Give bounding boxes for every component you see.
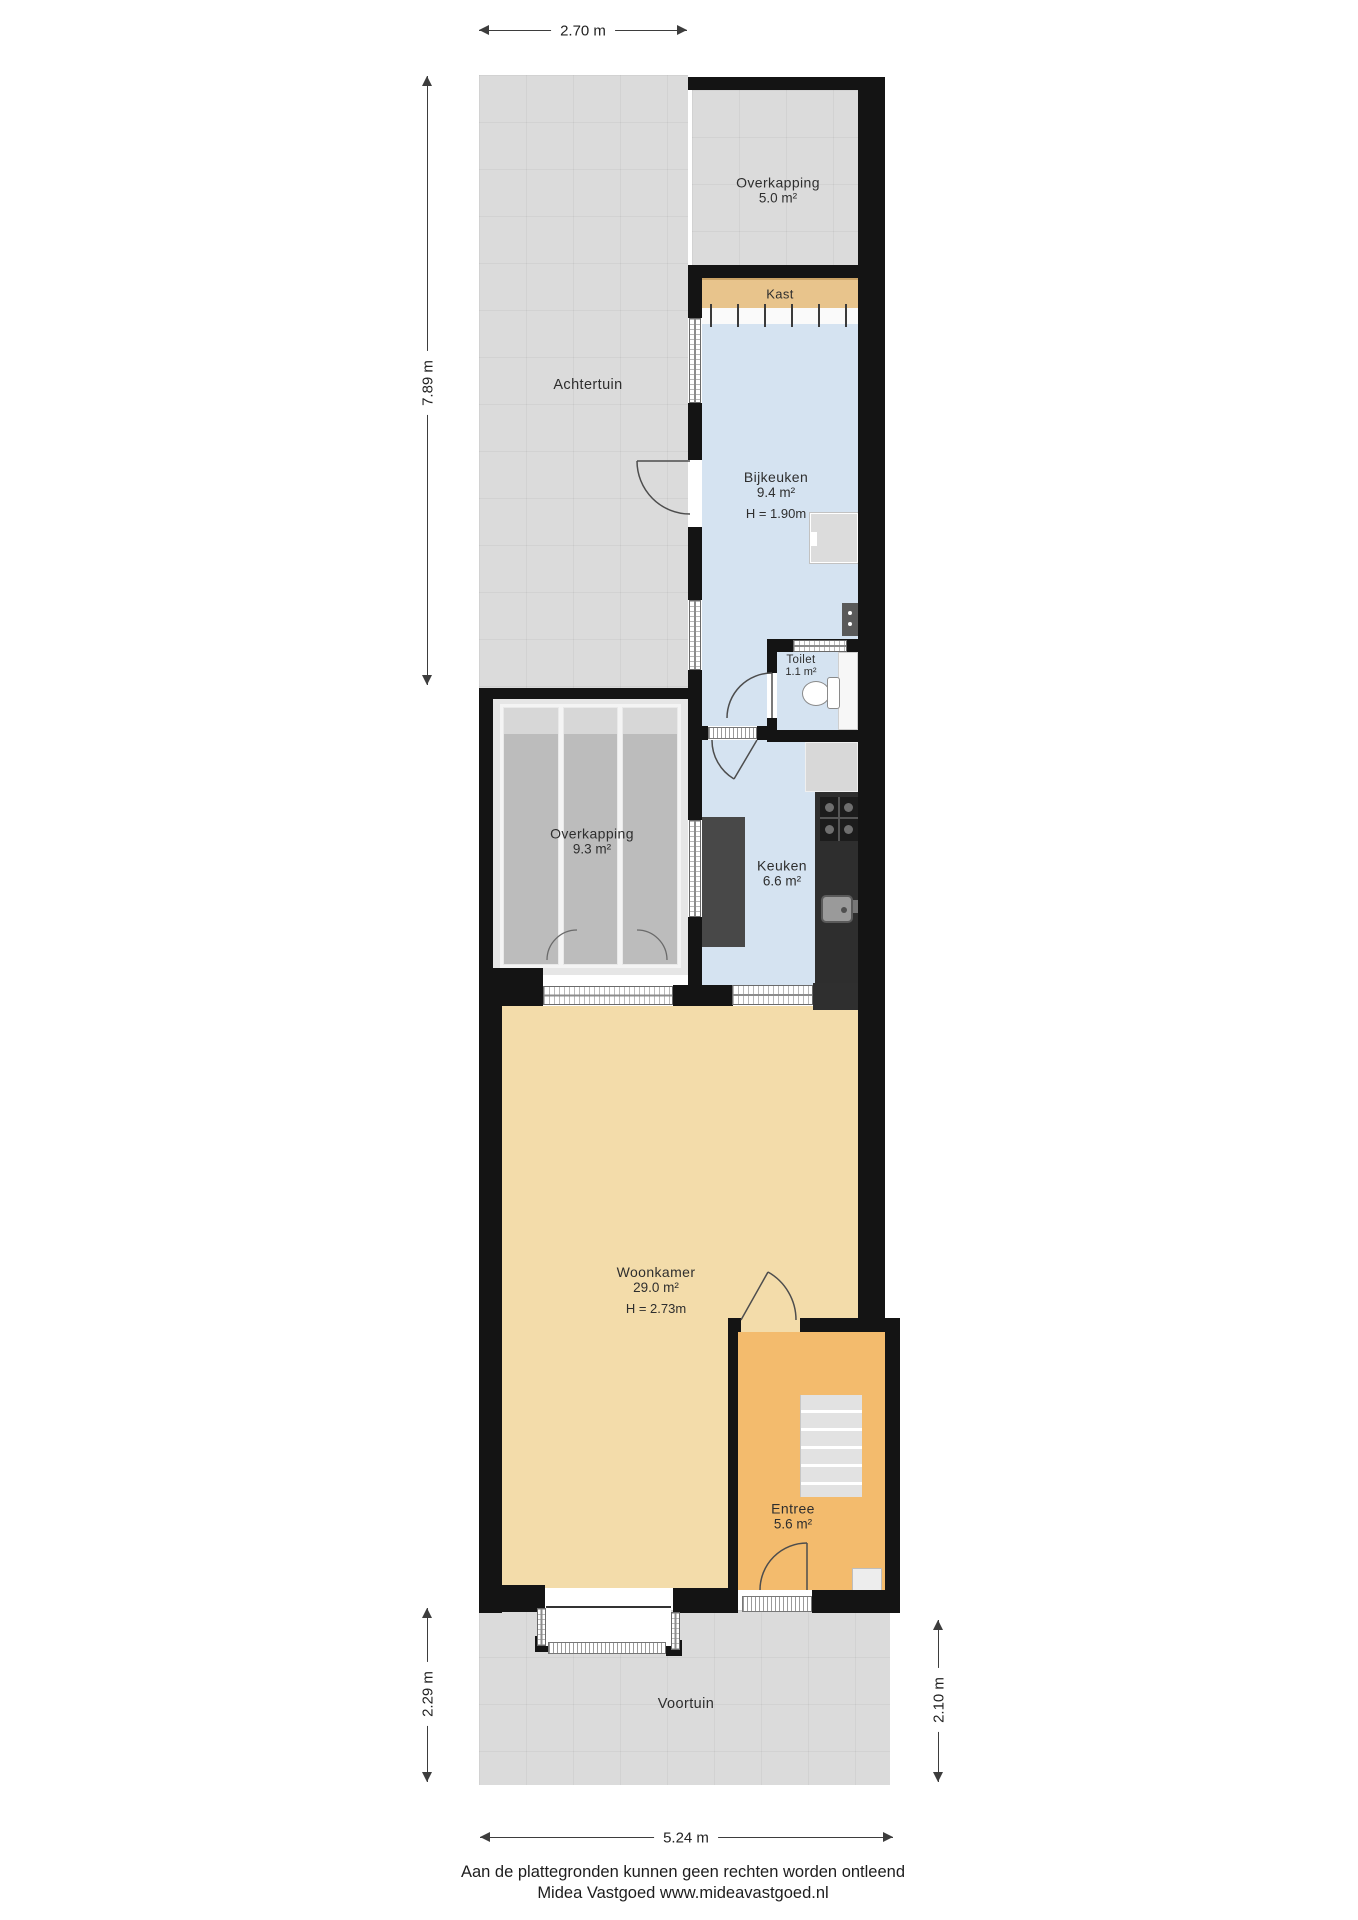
glass-door-arcs	[547, 930, 667, 960]
company-text: Midea Vastgoed www.mideavastgoed.nl	[461, 1883, 905, 1904]
arrowhead-right-icon	[677, 25, 687, 35]
arrowhead-down-icon	[933, 1772, 943, 1782]
label-achtertuin: Achtertuin	[553, 377, 622, 393]
arrowhead-left-icon	[480, 1832, 490, 1842]
room-name: Keuken	[757, 858, 807, 874]
room-label-kast: Kast	[766, 287, 794, 302]
room-name: Woonkamer	[617, 1264, 696, 1280]
room-name: Overkapping	[550, 826, 634, 842]
room-area: 6.6 m²	[757, 874, 807, 889]
arrowhead-down-icon	[422, 1772, 432, 1782]
arrowhead-up-icon	[933, 1620, 943, 1630]
room-area: 9.4 m²	[744, 485, 808, 500]
room-area: 5.0 m²	[736, 191, 820, 206]
room-name: Entree	[771, 1501, 815, 1517]
room-label-entree: Entree 5.6 m²	[771, 1501, 815, 1532]
room-label-woonkamer: Woonkamer 29.0 m² H = 2.73m	[617, 1264, 696, 1316]
room-name: Overkapping	[736, 175, 820, 191]
dimension-label-top: 2.70 m	[551, 23, 615, 40]
arrowhead-down-icon	[422, 675, 432, 685]
room-label-overkapping-mid: Overkapping 9.3 m²	[550, 826, 634, 857]
arrowhead-right-icon	[883, 1832, 893, 1842]
arrowhead-left-icon	[479, 25, 489, 35]
door-arcs-layer	[0, 0, 1358, 1920]
floor-plan: Overkapping 5.0 m² Kast Bijkeuken 9.4 m²…	[0, 0, 1358, 1920]
room-name: Kast	[766, 287, 794, 302]
room-height: H = 1.90m	[744, 506, 808, 521]
arrowhead-up-icon	[422, 1608, 432, 1618]
dimension-label-front-right: 2.10 m	[931, 1668, 948, 1732]
room-name: Toilet	[785, 654, 816, 666]
room-label-keuken: Keuken 6.6 m²	[757, 858, 807, 889]
dimension-label-bottom: 5.24 m	[654, 1830, 718, 1847]
room-label-toilet: Toilet 1.1 m²	[785, 654, 816, 678]
room-name: Bijkeuken	[744, 469, 808, 485]
room-area: 29.0 m²	[617, 1280, 696, 1295]
garden-door-arc	[637, 461, 690, 514]
room-area: 9.3 m²	[550, 842, 634, 857]
room-label-bijkeuken: Bijkeuken 9.4 m² H = 1.90m	[744, 469, 808, 521]
label-voortuin: Voortuin	[658, 1696, 714, 1712]
entree-door-arc	[741, 1272, 796, 1320]
front-door-arc	[760, 1543, 807, 1590]
arrowhead-up-icon	[422, 76, 432, 86]
toilet-door-arc	[727, 673, 772, 718]
dimension-label-front-left: 2.29 m	[420, 1662, 437, 1726]
room-label-overkapping-top: Overkapping 5.0 m²	[736, 175, 820, 206]
footer: Aan de plattegronden kunnen geen rechten…	[461, 1862, 905, 1905]
kitchen-door-arc	[712, 740, 757, 779]
room-area: 5.6 m²	[771, 1517, 815, 1532]
disclaimer-text: Aan de plattegronden kunnen geen rechten…	[461, 1862, 905, 1883]
dimension-label-back-depth: 7.89 m	[420, 351, 437, 415]
room-height: H = 2.73m	[617, 1301, 696, 1316]
room-area: 1.1 m²	[785, 666, 816, 678]
